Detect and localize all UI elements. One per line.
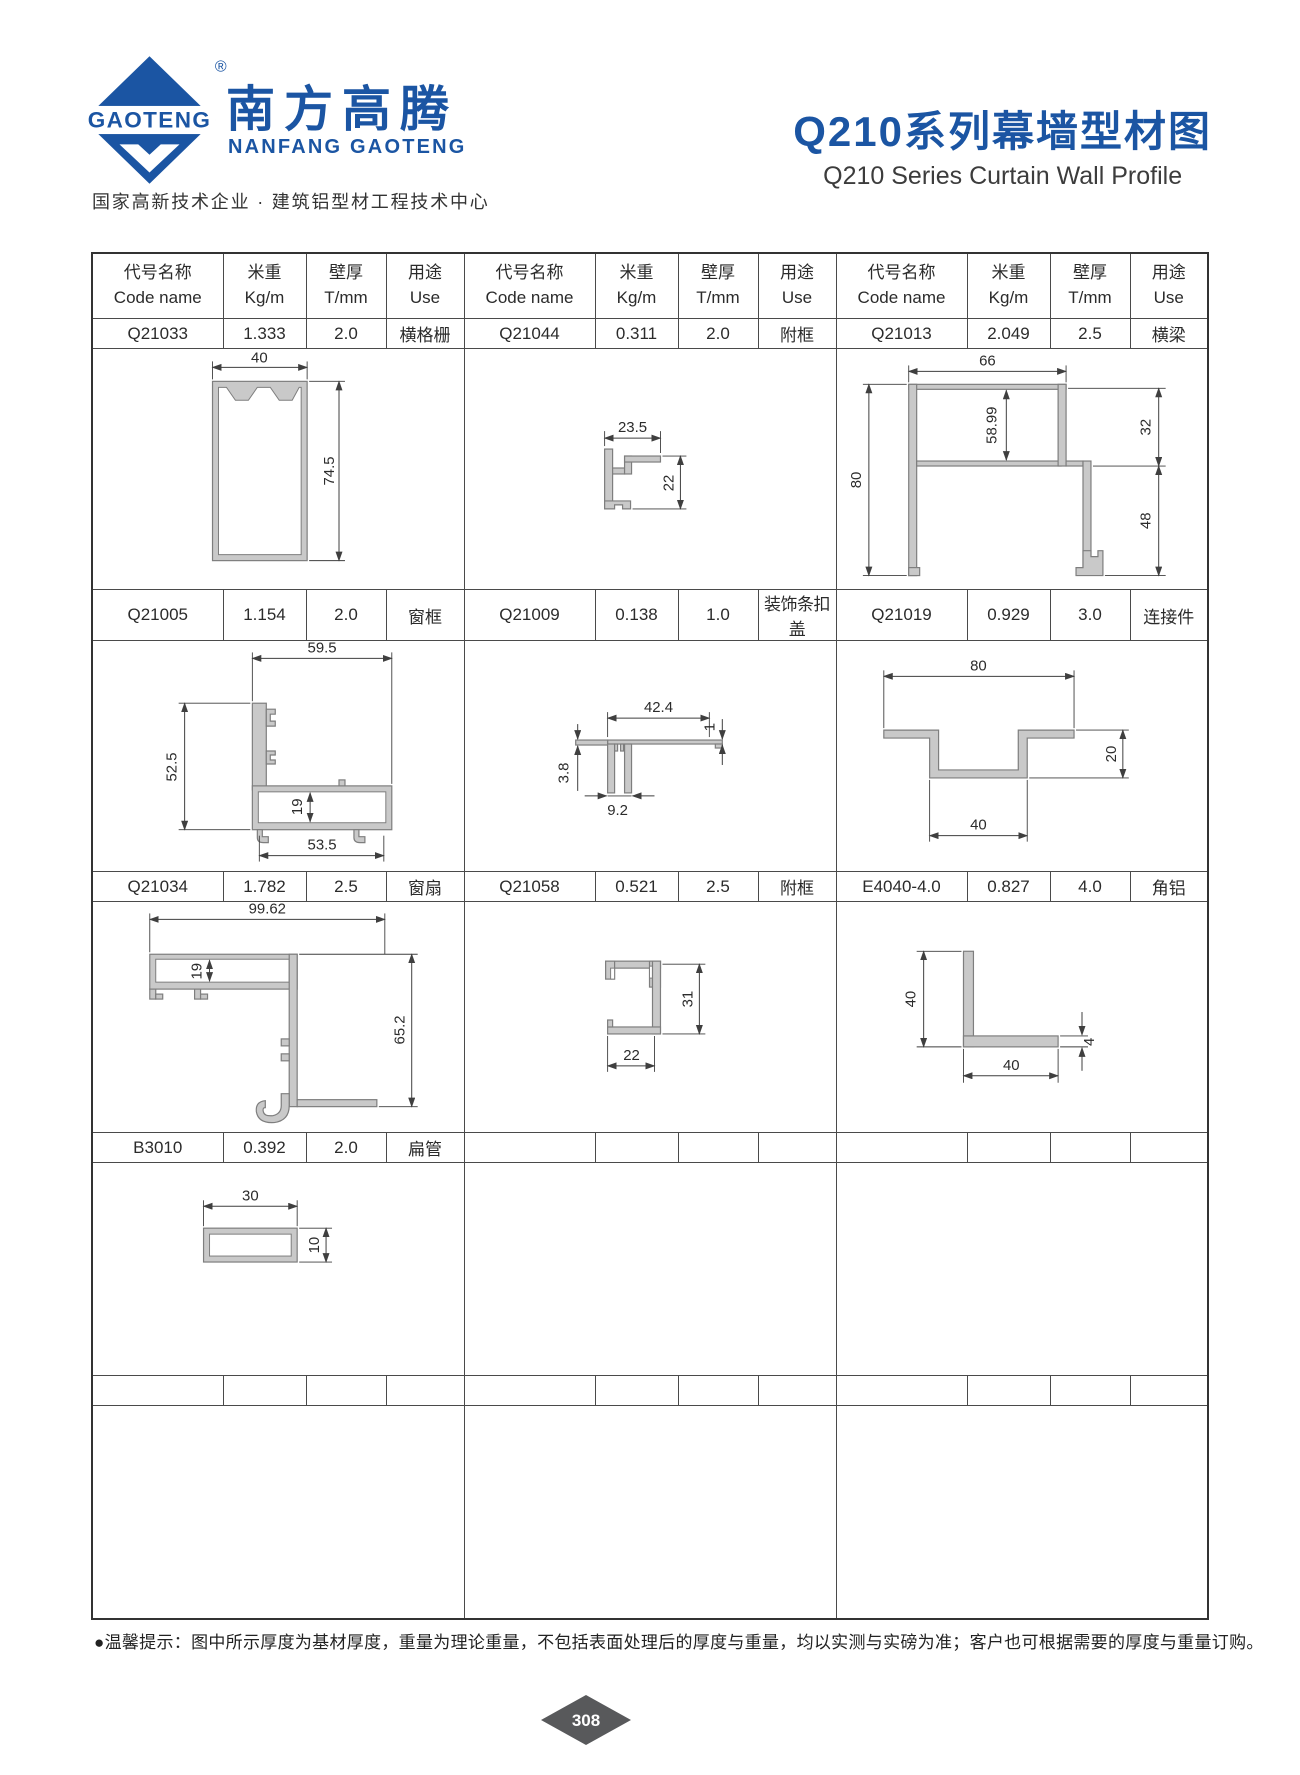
dim-label: 10 xyxy=(306,1237,323,1254)
cell-weight: 1.782 xyxy=(223,872,306,902)
cell-empty xyxy=(386,1376,464,1406)
page-title-cn: Q210系列幕墙型材图 xyxy=(793,98,1212,159)
cell-weight: 2.049 xyxy=(967,319,1050,349)
dim-label: 32 xyxy=(1137,419,1154,436)
empty-drawing-cell xyxy=(464,1163,836,1376)
dim-label: 65.2 xyxy=(392,1015,409,1044)
cell-use: 窗扇 xyxy=(386,872,464,902)
logo-text: GAOTENG xyxy=(88,108,212,133)
drawing-row-1: 40 74.5 23.5 xyxy=(92,349,1208,590)
brand-tagline: 国家高新技术企业 · 建筑铝型材工程技术中心 xyxy=(92,188,490,214)
cell-use: 横格栅 xyxy=(386,319,464,349)
cell-empty xyxy=(92,1376,223,1406)
dim-label: 19 xyxy=(289,798,306,815)
profile-drawing-q21044: 23.5 22 xyxy=(464,349,836,590)
cell-code: Q21034 xyxy=(92,872,223,902)
cell-empty xyxy=(836,1133,967,1163)
dim-label: 53.5 xyxy=(308,837,337,854)
cell-thickness: 2.0 xyxy=(306,319,386,349)
header-code: 代号名称Code name xyxy=(836,253,967,319)
header-weight: 米重Kg/m xyxy=(595,253,678,319)
header-use: 用途Use xyxy=(386,253,464,319)
footer-note: ●温馨提示：图中所示厚度为基材厚度，重量为理论重量，不包括表面处理后的厚度与重量… xyxy=(94,1628,1264,1653)
profile-drawing-e4040: 40 40 4 xyxy=(836,902,1208,1133)
cell-empty xyxy=(464,1133,595,1163)
profile-drawing-q21019: 80 20 40 xyxy=(836,641,1208,872)
cell-empty xyxy=(1130,1133,1208,1163)
profile-table: 代号名称Code name 米重Kg/m 壁厚T/mm 用途Use 代号名称Co… xyxy=(91,252,1209,1620)
dim-label: 74.5 xyxy=(321,456,338,485)
dim-label: 22 xyxy=(660,475,677,492)
cell-use: 连接件 xyxy=(1130,590,1208,641)
cell-empty xyxy=(758,1376,836,1406)
cell-empty xyxy=(678,1376,758,1406)
dim-label: 80 xyxy=(847,472,864,489)
cell-weight: 0.827 xyxy=(967,872,1050,902)
dim-label: 9.2 xyxy=(607,802,628,819)
cell-weight: 1.154 xyxy=(223,590,306,641)
dim-label: 42.4 xyxy=(643,699,672,716)
dim-label: 40 xyxy=(970,817,987,834)
cell-thickness: 2.5 xyxy=(1050,319,1130,349)
cell-code: Q21013 xyxy=(836,319,967,349)
cell-code: B3010 xyxy=(92,1133,223,1163)
table-header-row: 代号名称Code name 米重Kg/m 壁厚T/mm 用途Use 代号名称Co… xyxy=(92,253,1208,319)
dim-label: 40 xyxy=(902,991,919,1008)
cell-use: 附框 xyxy=(758,319,836,349)
dim-label: 22 xyxy=(623,1047,640,1064)
drawing-row-4: 30 10 xyxy=(92,1163,1208,1376)
dim-label: 40 xyxy=(251,349,268,366)
cell-empty xyxy=(678,1133,758,1163)
dim-label: 23.5 xyxy=(618,419,647,436)
cell-weight: 0.138 xyxy=(595,590,678,641)
brand-name-en: NANFANG GAOTENG xyxy=(228,136,467,159)
cell-empty xyxy=(758,1133,836,1163)
data-row-2: Q21005 1.154 2.0 窗框 Q21009 0.138 1.0 装饰条… xyxy=(92,590,1208,641)
data-row-3: Q21034 1.782 2.5 窗扇 Q21058 0.521 2.5 附框 … xyxy=(92,872,1208,902)
profile-shape xyxy=(883,730,1073,778)
profile-drawing-q21009: 42.4 1 3.8 9.2 xyxy=(464,641,836,872)
empty-drawing-cell xyxy=(836,1163,1208,1376)
header-use: 用途Use xyxy=(758,253,836,319)
cell-empty xyxy=(1050,1133,1130,1163)
dim-label: 19 xyxy=(189,963,206,980)
cell-use: 装饰条扣盖 xyxy=(758,590,836,641)
dim-label: 31 xyxy=(679,991,696,1008)
dim-label: 4 xyxy=(1080,1038,1097,1046)
dim-label: 52.5 xyxy=(164,752,181,781)
cell-empty xyxy=(967,1376,1050,1406)
header-weight: 米重Kg/m xyxy=(967,253,1050,319)
dim-label: 99.62 xyxy=(249,902,286,917)
cell-thickness: 2.0 xyxy=(678,319,758,349)
dim-label: 20 xyxy=(1102,746,1119,763)
cell-empty xyxy=(595,1133,678,1163)
empty-drawing-cell xyxy=(836,1406,1208,1620)
cell-thickness: 3.0 xyxy=(1050,590,1130,641)
cell-weight: 0.311 xyxy=(595,319,678,349)
profile-drawing-q21005: 59.5 52.5 19 53.5 xyxy=(92,641,464,872)
profile-drawing-q21058: 31 22 xyxy=(464,902,836,1133)
cell-weight: 0.521 xyxy=(595,872,678,902)
cell-weight: 0.392 xyxy=(223,1133,306,1163)
drawing-row-2: 59.5 52.5 19 53.5 xyxy=(92,641,1208,872)
cell-empty xyxy=(595,1376,678,1406)
note-bullet: ● xyxy=(94,1633,105,1652)
page-title-block: Q210系列幕墙型材图 Q210 Series Curtain Wall Pro… xyxy=(793,98,1212,191)
cell-thickness: 4.0 xyxy=(1050,872,1130,902)
cell-empty xyxy=(306,1376,386,1406)
cell-thickness: 1.0 xyxy=(678,590,758,641)
header-thickness: 壁厚T/mm xyxy=(1050,253,1130,319)
cell-code: Q21005 xyxy=(92,590,223,641)
cell-weight: 1.333 xyxy=(223,319,306,349)
data-row-4: B3010 0.392 2.0 扁管 xyxy=(92,1133,1208,1163)
cell-use: 角铝 xyxy=(1130,872,1208,902)
header-thickness: 壁厚T/mm xyxy=(678,253,758,319)
company-logo-icon: GAOTENG ® xyxy=(82,50,232,195)
cell-use: 附框 xyxy=(758,872,836,902)
brand-name-cn: 南方高腾 xyxy=(226,70,458,141)
profile-drawing-q21013: 66 58.99 80 32 xyxy=(836,349,1208,590)
cell-empty xyxy=(967,1133,1050,1163)
cell-code: Q21058 xyxy=(464,872,595,902)
note-text: 温馨提示：图中所示厚度为基材厚度，重量为理论重量，不包括表面处理后的厚度与重量，… xyxy=(105,1633,1264,1652)
cell-code: Q21009 xyxy=(464,590,595,641)
dim-label: 30 xyxy=(242,1187,259,1204)
cell-thickness: 2.5 xyxy=(306,872,386,902)
dim-label: 59.5 xyxy=(308,641,337,656)
cell-weight: 0.929 xyxy=(967,590,1050,641)
cell-code: Q21033 xyxy=(92,319,223,349)
cell-thickness: 2.5 xyxy=(678,872,758,902)
dim-label: 58.99 xyxy=(983,407,1000,444)
cell-code: Q21044 xyxy=(464,319,595,349)
dim-label: 1 xyxy=(701,723,718,731)
dim-label: 3.8 xyxy=(555,763,572,784)
cell-empty xyxy=(1050,1376,1130,1406)
data-row-5 xyxy=(92,1376,1208,1406)
cell-code: Q21019 xyxy=(836,590,967,641)
page-number: 308 xyxy=(572,1711,600,1730)
empty-drawing-cell xyxy=(92,1406,464,1620)
empty-drawing-cell xyxy=(464,1406,836,1620)
cell-empty xyxy=(223,1376,306,1406)
header-thickness: 壁厚T/mm xyxy=(306,253,386,319)
cell-empty xyxy=(836,1376,967,1406)
cell-use: 窗框 xyxy=(386,590,464,641)
drawing-row-5 xyxy=(92,1406,1208,1620)
cell-empty xyxy=(464,1376,595,1406)
cell-thickness: 2.0 xyxy=(306,590,386,641)
header-code: 代号名称Code name xyxy=(464,253,595,319)
header-weight: 米重Kg/m xyxy=(223,253,306,319)
cell-use: 横梁 xyxy=(1130,319,1208,349)
profile-drawing-b3010: 30 10 xyxy=(92,1163,464,1376)
dim-label: 40 xyxy=(1002,1057,1019,1074)
profile-drawing-q21033: 40 74.5 xyxy=(92,349,464,590)
page-title-en: Q210 Series Curtain Wall Profile xyxy=(793,162,1212,191)
cell-thickness: 2.0 xyxy=(306,1133,386,1163)
header-code: 代号名称Code name xyxy=(92,253,223,319)
cell-code: E4040-4.0 xyxy=(836,872,967,902)
dim-label: 66 xyxy=(979,352,996,369)
profile-drawing-q21034: 99.62 19 65.2 xyxy=(92,902,464,1133)
header-use: 用途Use xyxy=(1130,253,1208,319)
page-number-diamond: 308 xyxy=(540,1694,632,1751)
cell-empty xyxy=(1130,1376,1208,1406)
dim-label: 48 xyxy=(1137,512,1154,529)
data-row-1: Q21033 1.333 2.0 横格栅 Q21044 0.311 2.0 附框… xyxy=(92,319,1208,349)
dim-label: 80 xyxy=(970,657,987,674)
drawing-row-3: 99.62 19 65.2 xyxy=(92,902,1208,1133)
cell-use: 扁管 xyxy=(386,1133,464,1163)
